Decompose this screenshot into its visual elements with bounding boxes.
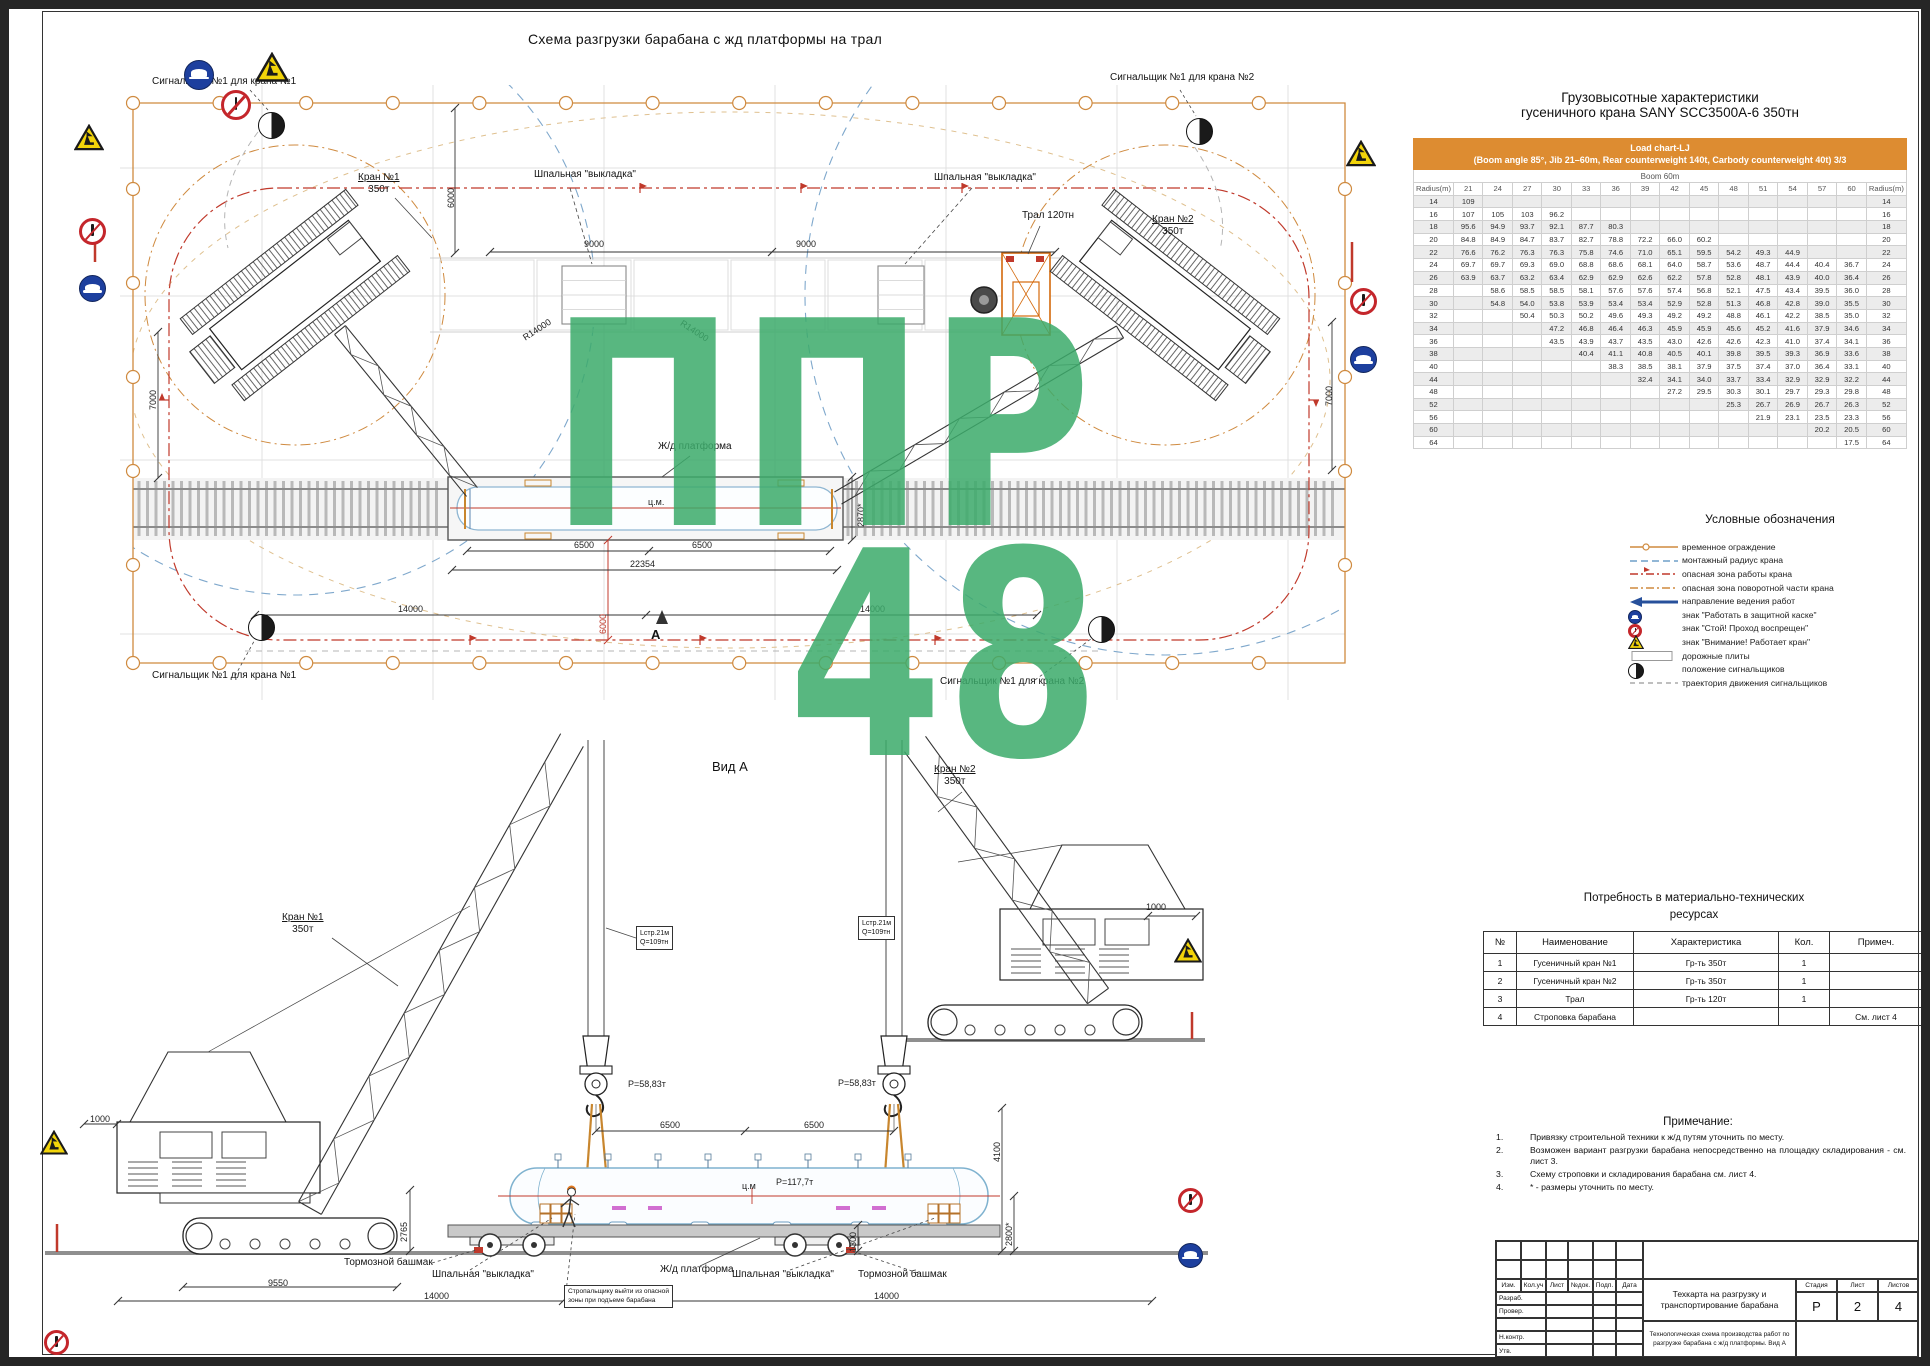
cell [1778, 195, 1807, 208]
sleeper-stack2-label: Шпальная "выкладка" [934, 172, 1036, 183]
cell: 1 [1779, 972, 1830, 990]
crane-warning-sign-icon [1628, 635, 1682, 648]
cell: 44 [1414, 373, 1454, 386]
label-d2800: 2800* [1004, 1222, 1014, 1246]
cell [1571, 436, 1600, 449]
cell [1719, 233, 1748, 246]
cell: 58.6 [1483, 284, 1512, 297]
cell [1542, 436, 1571, 449]
cell: 109 [1454, 195, 1483, 208]
resources-title: Потребность в материально-технических ре… [1483, 890, 1905, 923]
table-row: 2084.884.984.783.782.778.872.266.060.220 [1414, 233, 1907, 246]
titleblock-cell [1616, 1318, 1643, 1331]
cell [1719, 424, 1748, 437]
cell [1542, 386, 1571, 399]
titleblock-cell [1496, 1260, 1521, 1279]
cell: 40.1 [1689, 347, 1718, 360]
cell: 24 [1483, 183, 1512, 196]
cell: 37.4 [1748, 360, 1777, 373]
resources-panel: Потребность в материально-технических ре… [1483, 890, 1905, 1026]
drum-weight-label: Р=117,7т [776, 1177, 813, 1187]
legend-item: опасная зона работы крана [1628, 567, 1912, 581]
titleblock-col-header: Изм. [1496, 1279, 1521, 1292]
cell: 50.4 [1512, 309, 1541, 322]
sleeper-label-right: Шпальная "выкладка" [732, 1269, 834, 1280]
note-number: 2. [1490, 1145, 1530, 1168]
cell [1630, 424, 1659, 437]
titleblock-row-label: Утв. [1496, 1344, 1546, 1358]
cell [1571, 386, 1600, 399]
cell: 32.9 [1807, 373, 1836, 386]
signalman-icon [1186, 118, 1213, 145]
crane1-side-label-line2: 350т [282, 924, 324, 936]
rigger-warning-callout: Стропальщику выйти из опаснойзоны при по… [564, 1285, 673, 1308]
cell: 58.5 [1512, 284, 1541, 297]
cell: 43.0 [1660, 335, 1689, 348]
cell: 103 [1512, 208, 1541, 221]
cell: 105 [1483, 208, 1512, 221]
cell: 74.6 [1601, 246, 1630, 259]
cell: 52.8 [1719, 271, 1748, 284]
cell: 48.8 [1719, 309, 1748, 322]
sling-callout-1-line2: Q=109тн [640, 938, 669, 947]
cell: 68.1 [1630, 259, 1659, 272]
cell [1630, 195, 1659, 208]
load-chart-header-line2: (Boom angle 85°, Jib 21–60m, Rear counte… [1414, 154, 1906, 166]
cell: Boom 60m [1414, 170, 1907, 183]
cell: 93.7 [1512, 221, 1541, 234]
hook1-load-label: Р=58,83т [628, 1079, 666, 1089]
cell [1483, 322, 1512, 335]
legend-item: дорожные плиты [1628, 649, 1912, 663]
label-d14000: 14000 [860, 604, 885, 614]
legend-item-label: знак "Внимание! Работает кран" [1682, 637, 1810, 647]
titleblock-cell [1593, 1260, 1616, 1279]
cell [1601, 208, 1630, 221]
cell: 37.4 [1807, 335, 1836, 348]
cell [1837, 221, 1867, 234]
cell: 49.2 [1660, 309, 1689, 322]
rigger-warning-callout-line1: Стропальщику выйти из опасной [568, 1288, 669, 1297]
legend-item-label: знак "Работать в защитной каске" [1682, 610, 1817, 620]
crane-warning-sign-icon [255, 52, 289, 88]
cell [1571, 411, 1600, 424]
stage-header: Листов [1878, 1279, 1919, 1292]
table-row: 3250.450.350.249.649.349.249.248.846.142… [1414, 309, 1907, 322]
cell: Гр-ть 350т [1634, 954, 1779, 972]
cell [1807, 208, 1836, 221]
cell [1630, 398, 1659, 411]
cell [1512, 411, 1541, 424]
titleblock-col-header: Подп. [1593, 1279, 1616, 1292]
crane2-plan-label-line1: Кран №2 [1152, 214, 1194, 226]
cell [1454, 347, 1483, 360]
cell: 34.1 [1660, 373, 1689, 386]
cell: 39.5 [1807, 284, 1836, 297]
cell [1542, 373, 1571, 386]
titleblock-cell [1616, 1305, 1643, 1318]
titleblock-cell [1643, 1241, 1919, 1279]
cell [1454, 424, 1483, 437]
legend-item-label: монтажный радиус крана [1682, 555, 1783, 565]
crane1-plan-label-line2: 350т [358, 184, 400, 196]
red-dashdot-icon [1628, 567, 1682, 580]
cell: 60 [1866, 424, 1906, 437]
titleblock-col-header: №док. [1568, 1279, 1593, 1292]
cell: 34.0 [1689, 373, 1718, 386]
cell: 57.4 [1660, 284, 1689, 297]
cell: 44.9 [1778, 246, 1807, 259]
cell: 37.5 [1719, 360, 1748, 373]
label-d7000: 7000 [148, 390, 158, 410]
cell: 39.3 [1778, 347, 1807, 360]
cell: 65.1 [1660, 246, 1689, 259]
cell: 54.8 [1483, 297, 1512, 310]
titleblock-cell [1616, 1292, 1643, 1305]
legend-item-label: знак "Стой! Проход воспрещен" [1682, 623, 1808, 633]
crane-warning-sign-icon [40, 1130, 68, 1160]
hard-hat-sign-icon [1178, 1243, 1203, 1268]
cell: 60 [1414, 424, 1454, 437]
column-header: Кол. [1779, 932, 1830, 954]
table-row: 4432.434.134.033.733.432.932.932.244 [1414, 373, 1907, 386]
cell: 45.9 [1660, 322, 1689, 335]
crane1-plan-label: Кран №1350т [358, 172, 400, 196]
cell [1601, 195, 1630, 208]
cell [1837, 208, 1867, 221]
cell: 83.7 [1542, 233, 1571, 246]
titleblock-cell [1593, 1305, 1616, 1318]
table-row: 5621.923.123.523.356 [1414, 411, 1907, 424]
cell: 53.6 [1719, 259, 1748, 272]
hard-hat-sign-icon [79, 275, 106, 302]
legend-item: знак "Стой! Проход воспрещен" [1628, 622, 1912, 636]
label-d9550: 9550 [268, 1278, 288, 1288]
center-of-mass-plan-label: ц.м. [648, 497, 664, 507]
cell: 53.9 [1571, 297, 1600, 310]
sling-callout-2-line2: Q=109тн [862, 928, 891, 937]
crane1-plan [170, 189, 477, 496]
cell [1807, 436, 1836, 449]
cell: 56 [1414, 411, 1454, 424]
cell: 37.9 [1807, 322, 1836, 335]
cell [1719, 221, 1748, 234]
cell: 20 [1414, 233, 1454, 246]
cell [1689, 424, 1718, 437]
table-row: 6020.220.560 [1414, 424, 1907, 437]
cell [1660, 398, 1689, 411]
hoist-ropes [588, 740, 902, 1036]
label-d1300: 1300 [848, 1232, 858, 1252]
cell: 82.7 [1571, 233, 1600, 246]
cell [1542, 360, 1571, 373]
cell: 62.9 [1571, 271, 1600, 284]
cell [1634, 1008, 1779, 1026]
note-item: 4.* - размеры уточнить по месту. [1490, 1182, 1906, 1194]
cell [1837, 195, 1867, 208]
cell: 20.5 [1837, 424, 1867, 437]
legend-item: опасная зона поворотной части крана [1628, 581, 1912, 595]
load-chart-title-line1: Грузовысотные характеристики [1430, 90, 1890, 105]
sleeper-stack1-label: Шпальная "выкладка" [534, 169, 636, 180]
cell: 96.2 [1542, 208, 1571, 221]
crane1-side-label: Кран №1350т [282, 912, 324, 936]
cell [1630, 221, 1659, 234]
cell [1512, 386, 1541, 399]
cell: 57.6 [1630, 284, 1659, 297]
cell [1454, 309, 1483, 322]
titleblock-cell [1616, 1241, 1643, 1260]
cell [1601, 386, 1630, 399]
legend-item-label: положение сигнальщиков [1682, 664, 1785, 674]
cell [1512, 436, 1541, 449]
blue-dash-icon [1628, 554, 1682, 567]
cell: 32.9 [1778, 373, 1807, 386]
cell: 3 [1484, 990, 1517, 1008]
load-chart: Load chart-LJ(Boom angle 85°, Jib 21–60m… [1413, 138, 1907, 449]
cell: 47.2 [1542, 322, 1571, 335]
titleblock-col-header: Лист [1546, 1279, 1568, 1292]
cell: 32.2 [1837, 373, 1867, 386]
cell: 26.9 [1778, 398, 1807, 411]
cell: 30 [1542, 183, 1571, 196]
cell: 24 [1414, 259, 1454, 272]
legend-item-label: дорожные плиты [1682, 651, 1750, 661]
stage-value: 2 [1837, 1292, 1878, 1321]
cell [1542, 195, 1571, 208]
sleeper-stacks-plan [562, 266, 924, 324]
cell: 26 [1866, 271, 1906, 284]
cell [1830, 954, 1923, 972]
center-of-mass-side-label: ц.м [742, 1181, 756, 1191]
railway-platform-plan [448, 477, 843, 540]
access-road [430, 258, 1060, 332]
cell [1571, 424, 1600, 437]
cell [1512, 424, 1541, 437]
cell [1454, 373, 1483, 386]
cell [1660, 221, 1689, 234]
label-d6500: 6500 [574, 540, 594, 550]
cell: 14 [1414, 195, 1454, 208]
cell: 75.8 [1571, 246, 1600, 259]
cell: 40 [1414, 360, 1454, 373]
cell [1630, 411, 1659, 424]
cell [1512, 322, 1541, 335]
cell: 30 [1414, 297, 1454, 310]
cell: 38.5 [1630, 360, 1659, 373]
titleblock-cell [1546, 1241, 1568, 1260]
load-chart-title-line2: гусеничного крана SANY SCC3500A-6 350тн [1430, 105, 1890, 120]
label-d9000: 9000 [796, 239, 816, 249]
cell: 30 [1866, 297, 1906, 310]
crane-warning-sign-icon [74, 124, 104, 156]
cell [1748, 208, 1777, 221]
cell: 29.3 [1807, 386, 1836, 399]
note-text: Возможен вариант разгрузки барабана непо… [1530, 1145, 1906, 1168]
cell [1454, 411, 1483, 424]
cell: 62.9 [1601, 271, 1630, 284]
cell: 45.9 [1689, 322, 1718, 335]
cell: 1 [1484, 954, 1517, 972]
cell: 52.1 [1719, 284, 1748, 297]
cell: 52 [1414, 398, 1454, 411]
hard-hat-sign-icon [1350, 346, 1377, 373]
cell [1748, 233, 1777, 246]
crane2-side-label: Кран №2350т [934, 764, 976, 788]
cell [1689, 221, 1718, 234]
cell [1454, 284, 1483, 297]
cell: 84.8 [1454, 233, 1483, 246]
cell: 64.0 [1660, 259, 1689, 272]
cell: 30.1 [1748, 386, 1777, 399]
label-d22354: 22354 [630, 559, 655, 569]
cell [1483, 309, 1512, 322]
cell [1837, 233, 1867, 246]
cell: 36.9 [1807, 347, 1836, 360]
cell: 49.6 [1601, 309, 1630, 322]
cell: 18 [1866, 221, 1906, 234]
section-a-marker: А [651, 628, 660, 643]
titleblock-cell [1521, 1241, 1546, 1260]
label-d4100: 4100 [992, 1142, 1002, 1162]
titleblock-cell [1616, 1260, 1643, 1279]
cell [1748, 424, 1777, 437]
cell: 54.2 [1719, 246, 1748, 259]
cell: 39.5 [1748, 347, 1777, 360]
cell: 36 [1866, 335, 1906, 348]
notes-title: Примечание: [1490, 1116, 1906, 1128]
legend-item: траектория движения сигнальщиков [1628, 676, 1912, 690]
cell [1512, 335, 1541, 348]
label-d1000: 1000 [1146, 902, 1166, 912]
titleblock-cell [1568, 1241, 1593, 1260]
cell [1719, 195, 1748, 208]
sleeper-label-left: Шпальная "выкладка" [432, 1269, 534, 1280]
platform-side-label: Ж/д платформа [660, 1264, 734, 1275]
cell: 26.7 [1748, 398, 1777, 411]
cell: 50.2 [1571, 309, 1600, 322]
cell: 32 [1414, 309, 1454, 322]
cell [1512, 347, 1541, 360]
cell: 63.9 [1454, 271, 1483, 284]
crane1-side [117, 734, 583, 1254]
cell: 94.9 [1483, 221, 1512, 234]
cell: 33.4 [1748, 373, 1777, 386]
no-passage-sign-icon [1350, 288, 1377, 315]
view-a-title: Вид А [712, 760, 748, 775]
titleblock-cell [1546, 1292, 1593, 1305]
cell: 44.4 [1778, 259, 1807, 272]
cell [1512, 398, 1541, 411]
cell: 72.2 [1630, 233, 1659, 246]
cell: 53.4 [1601, 297, 1630, 310]
legend-item: знак "Работать в защитной каске" [1628, 608, 1912, 622]
resources-table: №НаименованиеХарактеристикаКол.Примеч.1Г… [1483, 931, 1923, 1026]
label-d14000: 14000 [424, 1291, 449, 1301]
perimeter-fence [127, 97, 1352, 670]
no-passage-sign-icon [79, 218, 106, 245]
cell: 39.8 [1719, 347, 1748, 360]
cell: 69.0 [1542, 259, 1571, 272]
cell: 68.8 [1571, 259, 1600, 272]
cell: 16 [1866, 208, 1906, 221]
cell: 34.6 [1837, 322, 1867, 335]
resources-title-line2: ресурсах [1670, 909, 1718, 921]
cell: 48.7 [1748, 259, 1777, 272]
cell: 63.4 [1542, 271, 1571, 284]
plan-dimensions [154, 104, 1336, 624]
cell: Гр-ть 120т [1634, 990, 1779, 1008]
road-plate-icon [1628, 649, 1682, 662]
titleblock-cell [1546, 1318, 1593, 1331]
cell: 84.7 [1512, 233, 1541, 246]
table-row: 2276.676.276.376.375.874.671.065.159.554… [1414, 246, 1907, 259]
cell [1630, 436, 1659, 449]
brake-shoe-label-right: Тормозной башмак [858, 1269, 947, 1280]
cell [1689, 436, 1718, 449]
cell: 42.6 [1689, 335, 1718, 348]
cell [1689, 208, 1718, 221]
cell [1689, 195, 1718, 208]
cell: 40.8 [1630, 347, 1659, 360]
cell [1483, 195, 1512, 208]
cell: 71.0 [1630, 246, 1659, 259]
cell: 36.0 [1837, 284, 1867, 297]
cell: 41.0 [1778, 335, 1807, 348]
legend-item: знак "Внимание! Работает кран" [1628, 635, 1912, 649]
helmet-sign-icon [1628, 608, 1682, 621]
cell [1748, 436, 1777, 449]
table-row: 3840.441.140.840.540.139.839.539.336.933… [1414, 347, 1907, 360]
cell [1601, 373, 1630, 386]
legend-item-label: опасная зона поворотной части крана [1682, 583, 1834, 593]
cell: 52.8 [1689, 297, 1718, 310]
cell: 57.6 [1601, 284, 1630, 297]
titleblock-cell [1616, 1344, 1643, 1358]
cell: 49.3 [1748, 246, 1777, 259]
cell: 1 [1779, 954, 1830, 972]
hard-hat-sign-icon [184, 60, 214, 90]
cell: 50.3 [1542, 309, 1571, 322]
cell: 34 [1414, 322, 1454, 335]
label-d6500: 6500 [804, 1120, 824, 1130]
fence-line-icon [1628, 540, 1682, 553]
cell: Гр-ть 350т [1634, 972, 1779, 990]
cell: 20.2 [1807, 424, 1836, 437]
cell [1571, 208, 1600, 221]
cell: 76.3 [1512, 246, 1541, 259]
cell: 84.9 [1483, 233, 1512, 246]
cell [1719, 208, 1748, 221]
cell [1660, 436, 1689, 449]
cell: 54 [1778, 183, 1807, 196]
table-row: 4827.229.530.330.129.729.329.848 [1414, 386, 1907, 399]
cell: 49.3 [1630, 309, 1659, 322]
cell [1807, 246, 1836, 259]
cell [1630, 208, 1659, 221]
cell: 30.3 [1719, 386, 1748, 399]
signalman-icon [1088, 616, 1115, 643]
cell: 87.7 [1571, 221, 1600, 234]
titleblock-cell [1593, 1344, 1616, 1358]
legend-item-label: опасная зона работы крана [1682, 569, 1792, 579]
cell: 57 [1807, 183, 1836, 196]
cell: 45.2 [1748, 322, 1777, 335]
cell: Radius(m) [1866, 183, 1906, 196]
cell: 45 [1689, 183, 1718, 196]
label-d2765: 2765 [399, 1222, 409, 1242]
cell: 23.3 [1837, 411, 1867, 424]
